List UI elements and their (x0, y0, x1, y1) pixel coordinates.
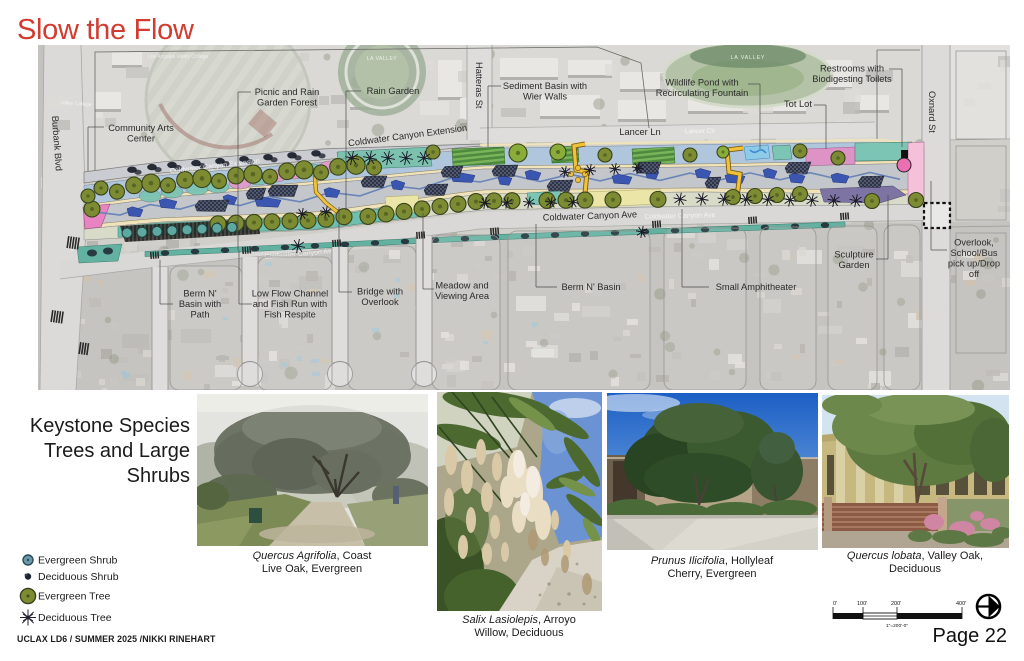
svg-text:Deciduous Shrub: Deciduous Shrub (38, 571, 119, 583)
svg-text:Overlook,: Overlook, (954, 238, 994, 248)
svg-text:Fish Respite: Fish Respite (264, 310, 316, 320)
svg-text:Garden: Garden (838, 260, 869, 270)
svg-text:Center: Center (127, 134, 155, 144)
svg-text:Hatteras St: Hatteras St (474, 62, 484, 109)
svg-text:Los Angeles Valley College: Los Angeles Valley College (148, 54, 208, 60)
svg-text:Picnic and Rain: Picnic and Rain (255, 87, 320, 97)
svg-text:Evergreen Shrub: Evergreen Shrub (38, 555, 118, 567)
svg-text:Tot Lot: Tot Lot (784, 99, 812, 109)
svg-text:Berm N' Basin: Berm N' Basin (561, 282, 620, 292)
svg-text:Rain Garden: Rain Garden (367, 86, 420, 96)
svg-text:School/Bus: School/Bus (950, 248, 997, 258)
svg-text:Berm N': Berm N' (183, 289, 217, 299)
svg-text:Meadow and: Meadow and (435, 281, 488, 291)
svg-text:Viewing Area: Viewing Area (435, 291, 490, 301)
svg-text:Sediment Basin with: Sediment Basin with (503, 81, 587, 91)
svg-text:Wildlife Pond with: Wildlife Pond with (665, 78, 738, 88)
svg-text:Biodigesting Toilets: Biodigesting Toilets (812, 74, 892, 84)
svg-text:Garden Forest: Garden Forest (257, 98, 317, 108)
svg-text:Evergreen Tree: Evergreen Tree (38, 591, 111, 603)
svg-text:Sculpture: Sculpture (834, 250, 873, 260)
svg-text:Lancer Cir: Lancer Cir (685, 128, 716, 136)
svg-text:200': 200' (891, 601, 901, 607)
svg-text:Path: Path (190, 310, 209, 320)
svg-text:Restrooms with: Restrooms with (820, 64, 884, 74)
svg-text:and Fish Run with: and Fish Run with (253, 299, 327, 309)
svg-text:off: off (969, 269, 980, 279)
svg-text:Basin with: Basin with (179, 299, 221, 309)
svg-text:Overlook: Overlook (361, 297, 399, 307)
svg-text:Oxnard St: Oxnard St (927, 91, 937, 133)
svg-text:0': 0' (833, 601, 837, 607)
svg-text:pick up/Drop: pick up/Drop (948, 259, 1000, 269)
svg-text:100': 100' (857, 601, 867, 607)
svg-text:Community Arts: Community Arts (108, 123, 174, 133)
svg-text:Lancer Ln: Lancer Ln (619, 127, 660, 137)
svg-text:Small Amphitheater: Small Amphitheater (716, 282, 797, 292)
svg-text:Wier Walls: Wier Walls (523, 92, 567, 102)
svg-text:Low Flow Channel: Low Flow Channel (252, 289, 328, 299)
svg-text:Bridge with: Bridge with (357, 287, 403, 297)
svg-text:Recirculating Fountain: Recirculating Fountain (656, 88, 749, 98)
svg-text:400': 400' (956, 601, 966, 607)
svg-text:Deciduous Tree: Deciduous Tree (38, 612, 112, 624)
